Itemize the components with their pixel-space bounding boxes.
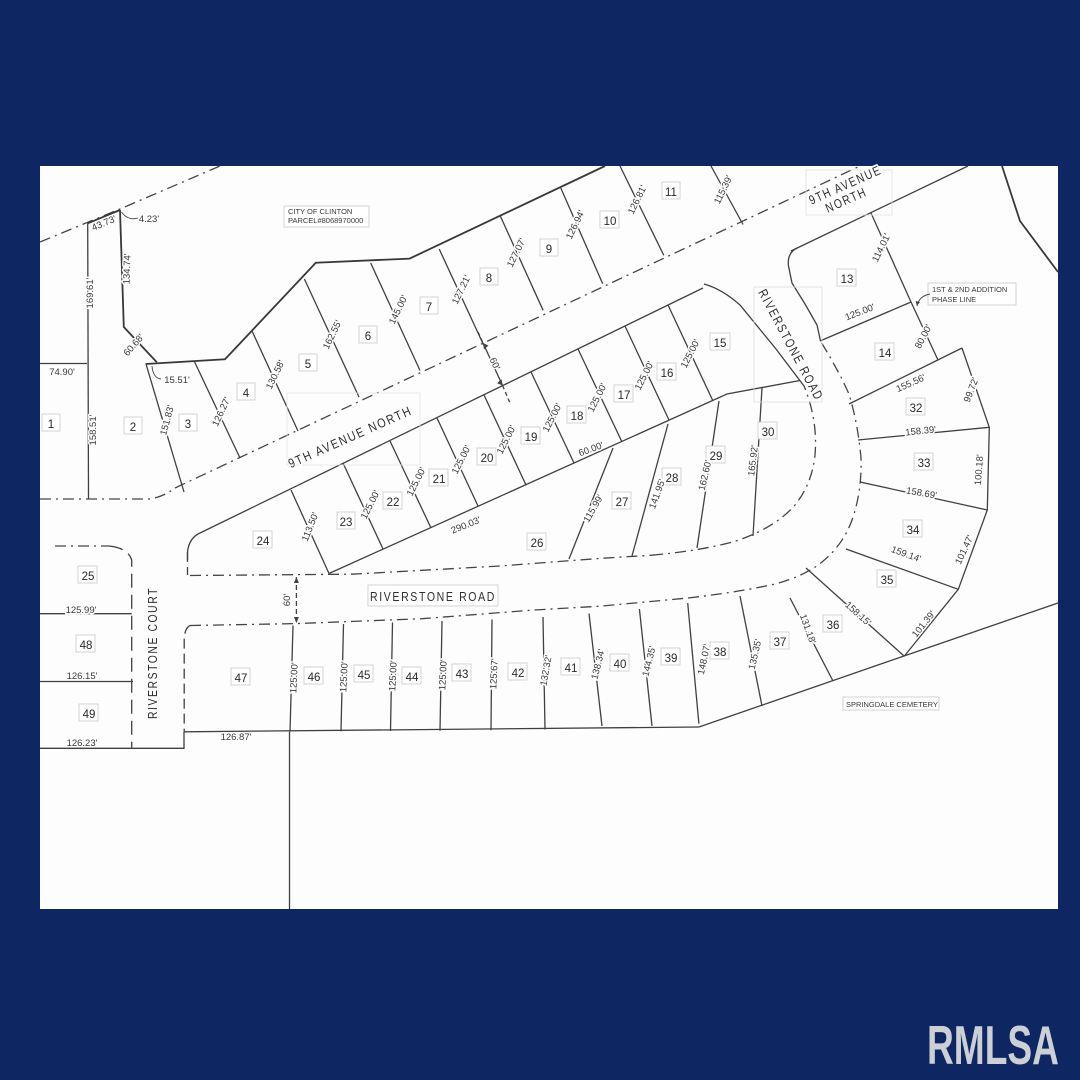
svg-text:6: 6 xyxy=(365,331,371,343)
svg-text:17: 17 xyxy=(618,390,631,402)
svg-text:126.23': 126.23' xyxy=(67,738,98,749)
svg-text:14: 14 xyxy=(879,348,892,360)
svg-text:48: 48 xyxy=(80,640,93,652)
svg-text:41: 41 xyxy=(565,663,578,675)
svg-text:25: 25 xyxy=(82,571,95,583)
svg-text:49: 49 xyxy=(83,709,96,721)
svg-text:60': 60' xyxy=(282,594,293,607)
svg-text:45: 45 xyxy=(358,670,371,682)
svg-text:CITY OF CLINTON: CITY OF CLINTON xyxy=(288,207,352,216)
svg-text:22: 22 xyxy=(387,497,400,509)
svg-text:169.61': 169.61' xyxy=(85,277,96,308)
svg-text:24: 24 xyxy=(257,536,270,548)
svg-text:26: 26 xyxy=(531,538,544,550)
svg-text:39: 39 xyxy=(665,653,678,665)
svg-text:16: 16 xyxy=(661,368,674,380)
svg-text:1: 1 xyxy=(48,419,54,431)
svg-text:40: 40 xyxy=(614,659,627,671)
svg-text:126.15': 126.15' xyxy=(67,671,98,682)
svg-text:7: 7 xyxy=(426,302,432,314)
svg-text:43: 43 xyxy=(456,669,469,681)
svg-text:21: 21 xyxy=(433,474,446,486)
svg-text:125.00': 125.00' xyxy=(387,660,400,692)
svg-text:158.51': 158.51' xyxy=(88,414,99,445)
svg-text:19: 19 xyxy=(525,432,538,444)
svg-text:20: 20 xyxy=(481,453,494,465)
svg-text:PHASE LINE: PHASE LINE xyxy=(932,295,976,304)
svg-text:RIVERSTONE ROAD: RIVERSTONE ROAD xyxy=(370,589,496,604)
svg-text:4.23': 4.23' xyxy=(139,214,159,225)
svg-text:100.18': 100.18' xyxy=(973,454,986,486)
svg-text:32: 32 xyxy=(910,403,923,415)
svg-text:126.87': 126.87' xyxy=(221,732,252,743)
svg-text:33: 33 xyxy=(918,458,931,470)
svg-text:37: 37 xyxy=(774,637,787,649)
svg-text:10: 10 xyxy=(604,216,617,228)
svg-text:2: 2 xyxy=(130,422,136,434)
svg-text:SPRINGDALE CEMETERY: SPRINGDALE CEMETERY xyxy=(846,700,938,709)
svg-text:8: 8 xyxy=(486,273,492,285)
svg-text:5: 5 xyxy=(305,359,311,371)
svg-text:23: 23 xyxy=(340,517,353,529)
svg-text:RIVERSTONE COURT: RIVERSTONE COURT xyxy=(145,587,160,719)
svg-text:125.00': 125.00' xyxy=(288,662,301,694)
svg-text:36: 36 xyxy=(827,620,840,632)
svg-text:15.51': 15.51' xyxy=(164,375,190,386)
svg-text:18: 18 xyxy=(571,411,584,423)
svg-text:125.99': 125.99' xyxy=(66,605,97,616)
svg-text:RMLSA: RMLSA xyxy=(927,1014,1059,1076)
svg-text:38: 38 xyxy=(714,647,727,659)
svg-text:30: 30 xyxy=(762,427,775,439)
svg-text:44: 44 xyxy=(406,672,419,684)
svg-text:74.90': 74.90' xyxy=(49,367,75,378)
svg-text:47: 47 xyxy=(235,673,248,685)
svg-text:9: 9 xyxy=(546,244,552,256)
svg-text:125.00': 125.00' xyxy=(437,659,450,691)
svg-text:35: 35 xyxy=(881,575,894,587)
svg-text:125.00': 125.00' xyxy=(338,661,351,693)
svg-text:1ST & 2ND ADDITION: 1ST & 2ND ADDITION xyxy=(932,285,1007,294)
svg-text:46: 46 xyxy=(308,672,321,684)
svg-text:3: 3 xyxy=(185,419,191,431)
svg-text:15: 15 xyxy=(714,338,727,350)
svg-text:PARCEL#8068970000: PARCEL#8068970000 xyxy=(288,216,363,225)
svg-text:13: 13 xyxy=(841,274,854,286)
svg-text:11: 11 xyxy=(665,187,677,199)
svg-text:28: 28 xyxy=(666,473,679,485)
svg-text:34: 34 xyxy=(907,525,920,537)
svg-text:42: 42 xyxy=(512,668,525,680)
svg-text:4: 4 xyxy=(243,388,250,400)
svg-text:134.74': 134.74' xyxy=(121,253,133,284)
svg-text:125.67': 125.67' xyxy=(488,658,501,690)
svg-text:27: 27 xyxy=(616,497,629,509)
